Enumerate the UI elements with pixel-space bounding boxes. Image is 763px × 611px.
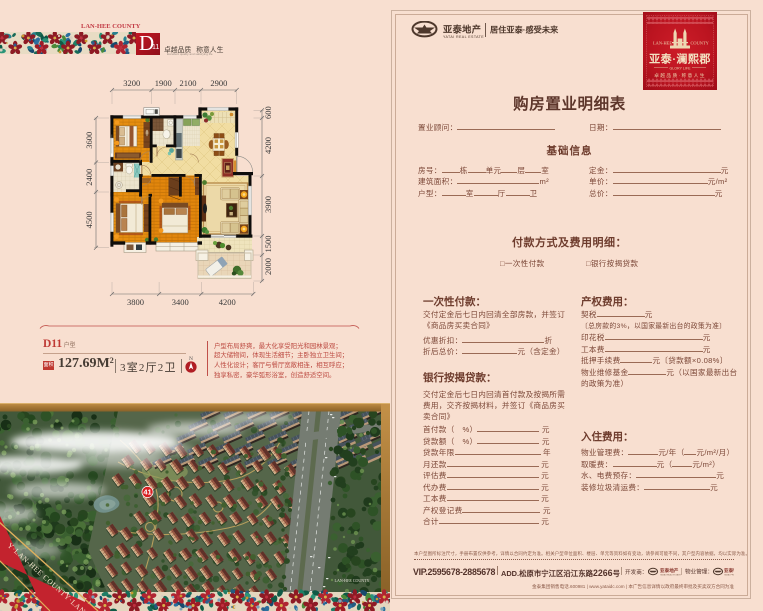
svg-text:亚泰地产: 亚泰地产	[443, 24, 481, 35]
svg-text:GLORY LIFE: GLORY LIFE	[669, 66, 691, 70]
svg-text:卓越品质·称意人生: 卓越品质·称意人生	[654, 72, 706, 79]
svg-text:YATAI PROPERTY: YATAI PROPERTY	[724, 574, 734, 576]
svg-text:N: N	[189, 356, 193, 362]
svg-text:3400: 3400	[172, 297, 189, 307]
svg-text:亚泰地产: 亚泰地产	[660, 567, 679, 574]
svg-text:2400: 2400	[84, 169, 94, 186]
svg-text:4200: 4200	[263, 137, 273, 154]
svg-text:4500: 4500	[84, 211, 94, 228]
svg-text:LAN-HEE: LAN-HEE	[653, 41, 672, 46]
svg-text:3200: 3200	[123, 78, 140, 88]
svg-text:2100: 2100	[180, 78, 197, 88]
svg-text:3800: 3800	[127, 297, 144, 307]
svg-text:LAN-HEE COUNTY: LAN-HEE COUNTY	[335, 578, 370, 583]
svg-text:600: 600	[263, 106, 273, 119]
svg-text:YATAI REAL ESTATE: YATAI REAL ESTATE	[443, 35, 484, 39]
svg-text:亚泰·澜熙郡: 亚泰·澜熙郡	[649, 52, 711, 66]
svg-text:YATAI REAL ESTATE: YATAI REAL ESTATE	[660, 574, 681, 576]
svg-text:1500: 1500	[263, 236, 273, 253]
svg-text:2900: 2900	[210, 78, 227, 88]
svg-text:2000: 2000	[263, 258, 273, 275]
svg-text:居住亚泰·感受未来: 居住亚泰·感受未来	[490, 25, 559, 35]
svg-text:3900: 3900	[263, 196, 273, 213]
svg-text:4200: 4200	[219, 297, 236, 307]
svg-text:亚泰物业: 亚泰物业	[724, 567, 734, 574]
svg-text:物业管理：: 物业管理：	[685, 567, 713, 575]
svg-text:41: 41	[143, 488, 151, 497]
svg-text:COUNTY: COUNTY	[691, 41, 710, 46]
svg-text:1900: 1900	[155, 78, 172, 88]
svg-text:3600: 3600	[84, 132, 94, 149]
